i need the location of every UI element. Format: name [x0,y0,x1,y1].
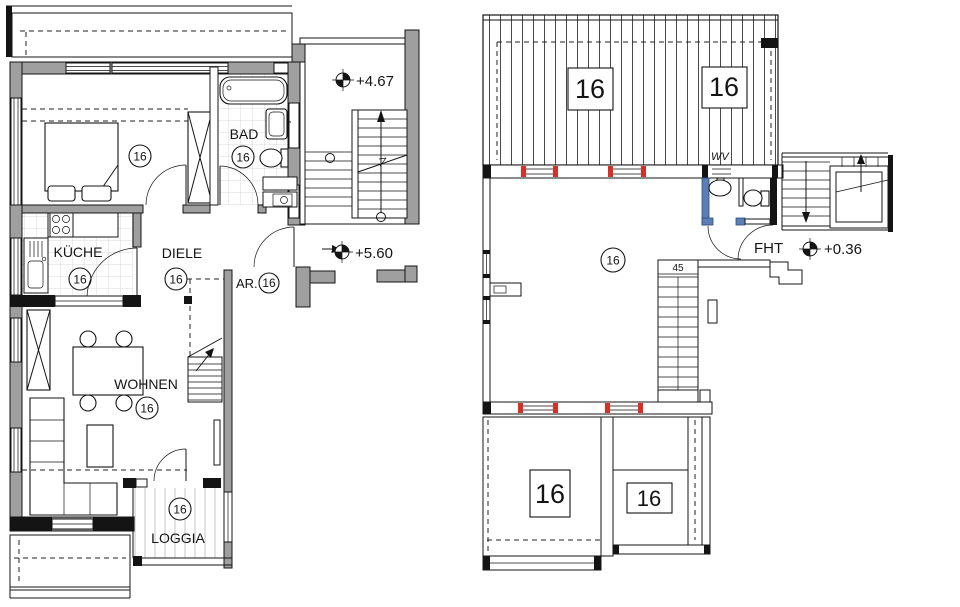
window [11,318,21,362]
wet-wall [702,218,713,225]
unit-badge-diele: 16 [165,268,187,290]
room-label-ar: AR. [236,276,258,291]
floor-plan-canvas: 16 BAD [0,0,960,607]
door-swing [154,449,186,481]
window-marker [608,166,613,177]
svg-text:16: 16 [575,74,605,104]
unit-badge-bedroom: 16 [129,145,151,167]
chair [116,395,132,411]
utility-closet [263,177,297,207]
svg-text:16: 16 [236,151,250,165]
main-room: 16 [483,165,783,414]
kitchen-sink-icon [24,238,48,293]
window [11,98,21,205]
stairwell-left: +4.67 +5.60 [292,30,419,282]
level-marker [331,241,353,263]
svg-text:16: 16 [535,479,565,509]
room-label-diele: DIELE [162,245,202,261]
svg-text:16: 16 [262,276,276,290]
entry-door-label: FHT [754,240,783,257]
svg-text:16: 16 [140,402,154,416]
storage-room: AR. 16 [236,267,335,307]
pillow [82,186,111,201]
window-marker [553,403,558,413]
chair [80,395,96,411]
room-label-wohnen: WOHNEN [114,376,178,392]
door-swing [708,226,741,259]
wardrobe [188,112,212,203]
svg-text:16: 16 [637,486,661,511]
window-marker [638,403,643,413]
roof-terrace-bottom: 16 16 [483,417,710,570]
balcony-top [6,6,292,57]
window-marker [518,403,523,413]
level-value-upper: +4.67 [356,73,394,90]
wall-step [770,262,802,284]
bedroom: 16 [22,67,218,213]
svg-text:16: 16 [173,503,187,517]
sink-icon [709,178,731,196]
balcony-bottom [10,535,130,598]
svg-text:16: 16 [709,72,739,102]
unit-badge-bad: 16 [232,146,254,168]
stairs [305,110,407,222]
level-value: +0.36 [824,241,862,258]
level-marker [799,238,821,260]
toilet-icon [260,149,288,167]
wardrobe [27,310,50,390]
svg-text:16: 16 [169,273,183,287]
wet-wall [736,218,745,225]
chair [116,331,132,347]
sink-icon [266,109,291,139]
room-label-loggia: LOGGIA [151,530,205,546]
internal-stairs [188,338,222,465]
living-room: WOHNEN 16 [22,310,222,515]
pillow [48,186,75,201]
unit-badge-ar: 16 [259,273,279,293]
unit-box-terrace-bottom-left: 16 [530,470,570,517]
entry-door-swing [254,227,294,267]
dining-set [73,331,143,411]
door-swing [146,165,186,205]
unit-box-terrace-right: 16 [702,67,747,108]
window [274,63,288,73]
unit-box-terrace-bottom-right: 16 [627,483,672,513]
right-plan: 16 16 [483,15,893,570]
unit-badge-kueche: 16 [69,268,91,290]
svg-text:16: 16 [606,254,620,268]
window-marker [521,166,526,177]
toilet-icon [744,190,769,206]
window [11,238,21,295]
level-value-lower: +5.60 [355,245,393,262]
window [289,103,299,148]
stairwell-right: +0.36 [782,153,893,260]
stove-icon [50,213,73,237]
unit-badge-wohnen: 16 [136,397,158,419]
coffee-table [87,425,113,467]
window-marker [641,166,646,177]
window [66,63,110,73]
unit-badge-loggia: 16 [169,498,191,520]
bathtub-icon [220,77,287,104]
left-plan: 16 BAD [6,6,419,598]
window-marker [553,166,558,177]
duct [490,283,521,296]
floor-plan-svg: 16 BAD [0,0,960,607]
vent-label: WV [711,151,730,163]
stair-interior: 45 [658,260,698,402]
unit-box-terrace-left: 16 [568,68,613,110]
bed [45,123,118,201]
room-label-kueche: KÜCHE [53,243,102,260]
window-marker [605,403,610,413]
svg-text:16: 16 [73,273,87,287]
stair-width-label: 45 [672,263,684,274]
window [11,428,21,472]
svg-text:16: 16 [133,150,147,164]
room-label-bad: BAD [230,126,259,142]
unit-badge-room: 16 [601,248,625,272]
chair [80,331,96,347]
loggia: 16 LOGGIA [133,488,232,566]
roof-terrace-top: 16 16 [483,15,778,165]
level-marker [332,69,354,91]
